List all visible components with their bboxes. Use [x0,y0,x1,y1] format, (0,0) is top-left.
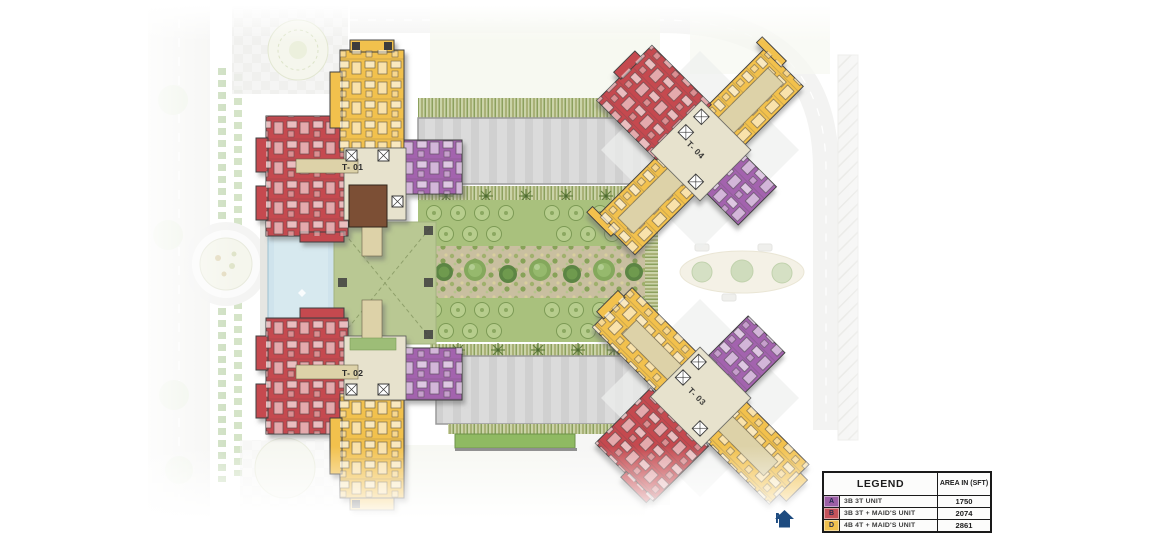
site-plan-graphic: T- 01 T- 02 T- 04 [0,0,1170,541]
tower-t01-lobby [349,185,387,227]
legend-row-d: D 4B 4T + MAID'S UNIT 2861 [823,520,991,533]
legend-row-a: A 3B 3T UNIT 1750 [823,496,991,508]
north-arrow-icon [775,510,794,528]
tower-t02-label: T- 02 [342,368,363,378]
unit-code-chip-b: B [823,508,840,520]
legend-area-header: AREA IN (SFT) [938,472,992,496]
north-indicator: N [775,510,786,527]
driveway-median-island [680,244,804,301]
tower-t01-label: T- 01 [342,162,363,172]
site-plan-page: T- 01 T- 02 T- 04 [0,0,1170,541]
roundabout [184,222,268,306]
unit-area-value-b: 2074 [938,508,992,520]
legend-title: LEGEND [823,472,938,496]
hedge-strip [455,434,575,448]
unit-type-label-d: 4B 4T + MAID'S UNIT [840,520,938,533]
legend-table: LEGEND AREA IN (SFT) A 3B 3T UNIT 1750 B… [822,471,992,533]
unit-area-value-d: 2861 [938,520,992,533]
legend-row-b: B 3B 3T + MAID'S UNIT 2074 [823,508,991,520]
unit-code-chip-d: D [823,520,840,533]
unit-type-label-b: 3B 3T + MAID'S UNIT [840,508,938,520]
unit-code-chip-a: A [823,496,840,508]
legend-header-row: LEGEND AREA IN (SFT) [823,472,991,496]
unit-type-label-a: 3B 3T UNIT [840,496,938,508]
unit-area-value-a: 1750 [938,496,992,508]
